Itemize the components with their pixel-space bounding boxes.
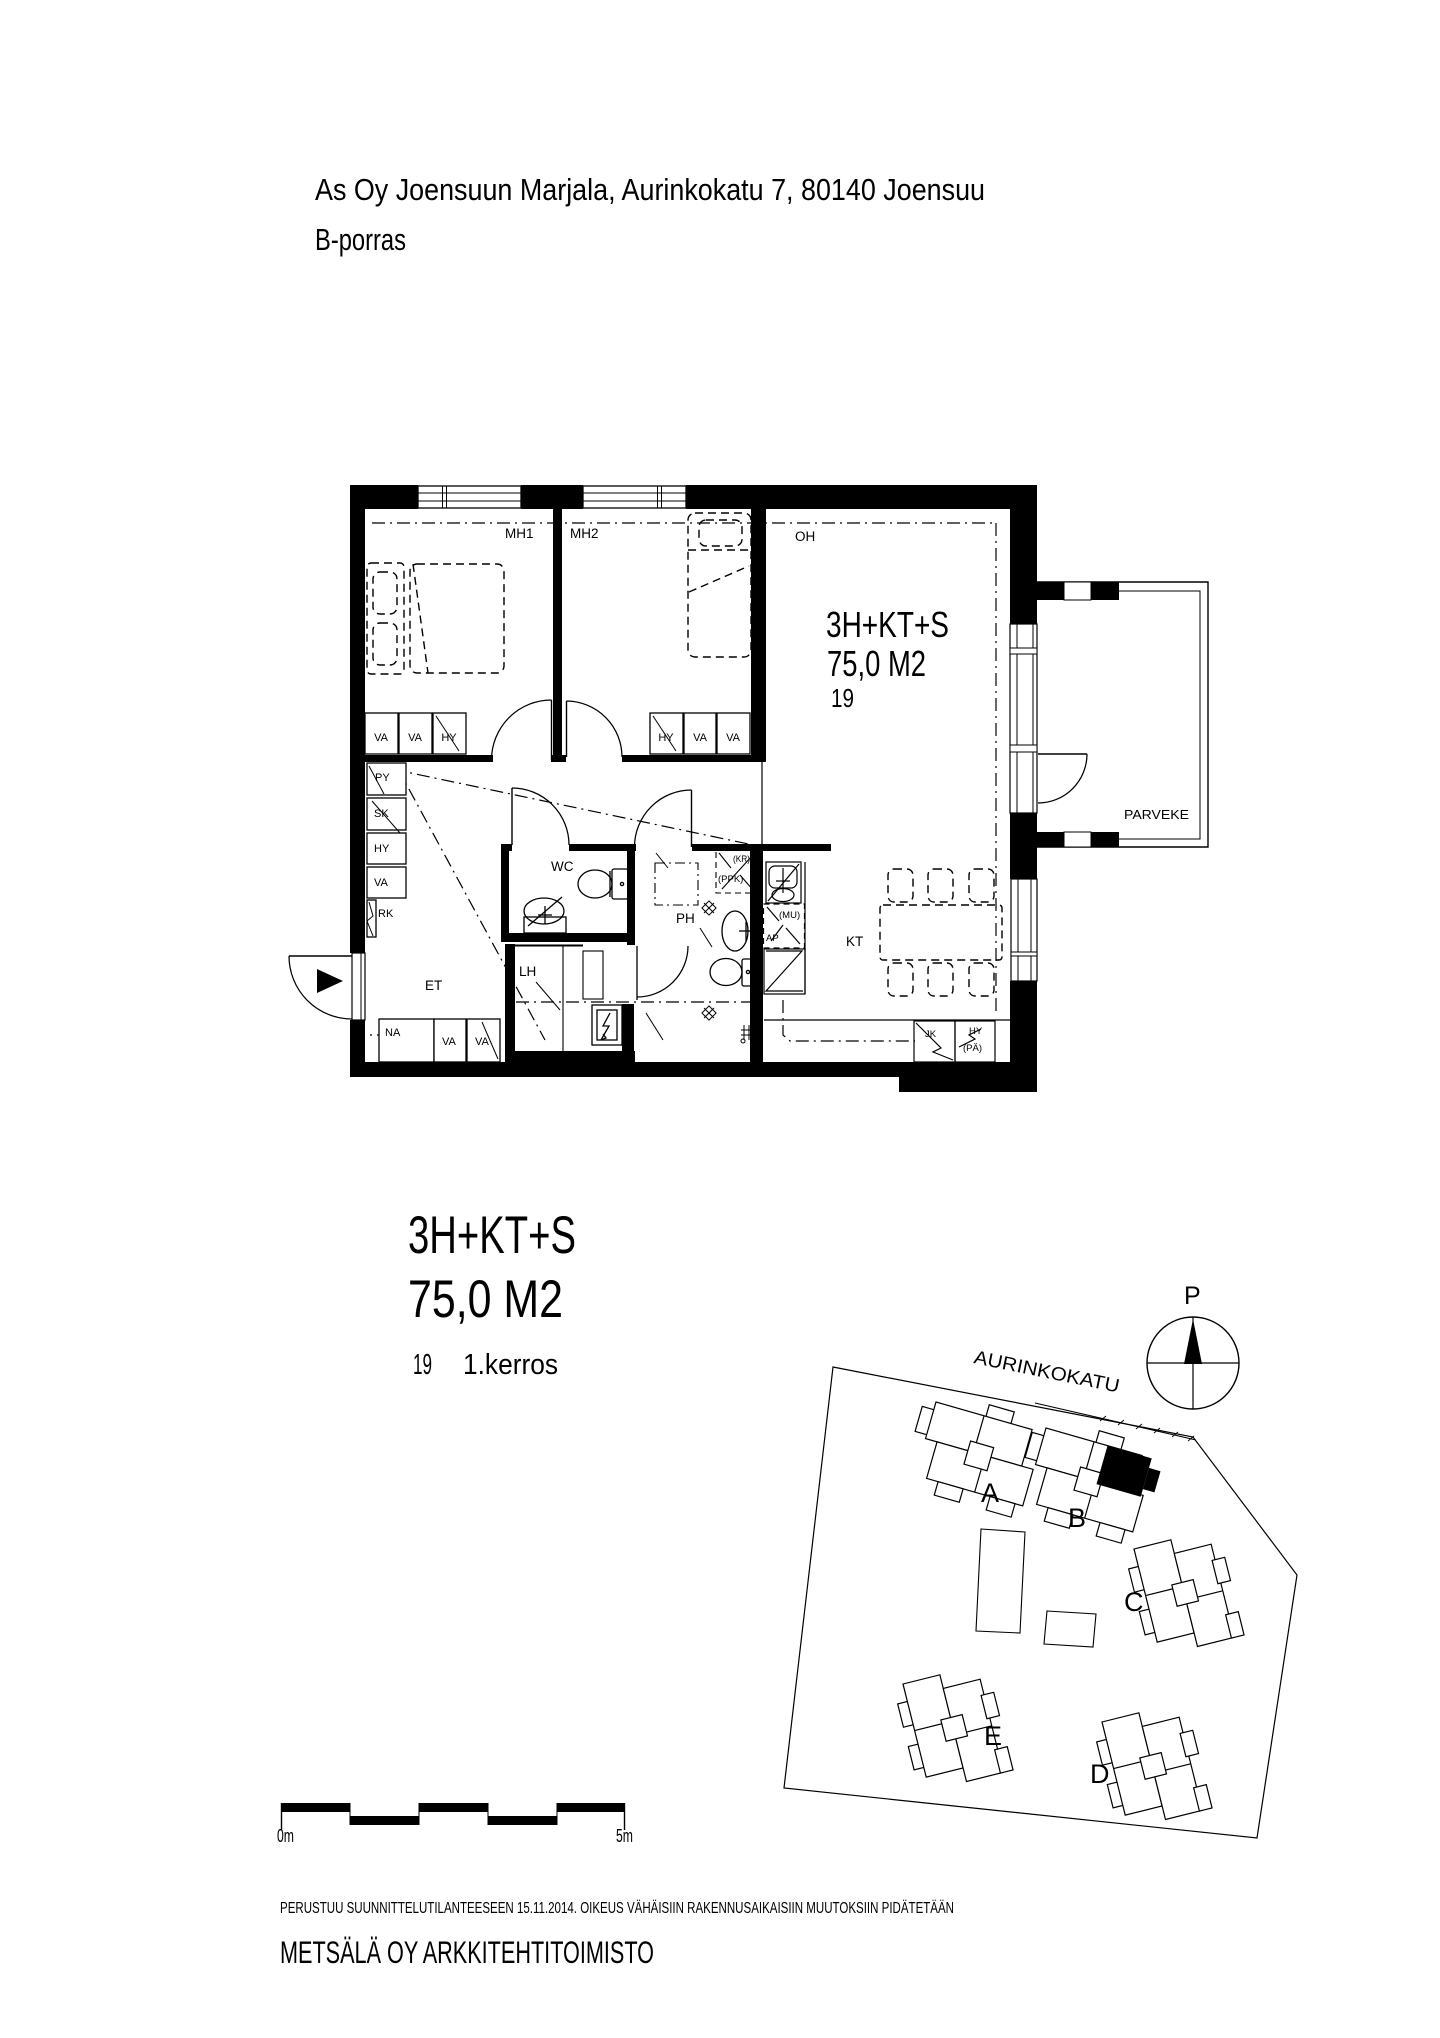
svg-text:A: A — [981, 1478, 999, 1508]
svg-text:As Oy Joensuun Marjala, Aurink: As Oy Joensuun Marjala, Aurinkokatu 7, 8… — [315, 172, 985, 207]
svg-text:PY: PY — [375, 772, 390, 784]
svg-text:RK: RK — [378, 908, 394, 920]
svg-text:B-porras: B-porras — [315, 222, 406, 257]
svg-text:AP: AP — [766, 933, 779, 944]
svg-text:VA: VA — [374, 877, 389, 889]
svg-text:JK: JK — [925, 1029, 937, 1040]
svg-text:3H+KT+S: 3H+KT+S — [408, 1206, 576, 1265]
svg-text:(MU): (MU) — [779, 910, 800, 921]
svg-text:PARVEKE: PARVEKE — [1124, 807, 1189, 822]
svg-text:B: B — [1068, 1503, 1086, 1533]
svg-text:PERUSTUU SUUNNITTELUTILANTEESE: PERUSTUU SUUNNITTELUTILANTEESEEN 15.11.2… — [280, 1899, 954, 1917]
svg-text:OH: OH — [795, 529, 815, 544]
svg-text:VA: VA — [442, 1036, 457, 1048]
svg-text:ET: ET — [425, 978, 442, 993]
svg-text:(KR): (KR) — [733, 854, 750, 865]
svg-text:P: P — [1184, 1282, 1201, 1310]
svg-text:19: 19 — [831, 683, 854, 713]
svg-text:75,0 M2: 75,0 M2 — [408, 1270, 563, 1329]
svg-text:VA: VA — [693, 732, 708, 744]
svg-text:(PPK): (PPK) — [718, 874, 743, 885]
svg-text:HY: HY — [969, 1026, 983, 1037]
svg-text:METSÄLÄ OY ARKKITEHTITOIMISTO: METSÄLÄ OY ARKKITEHTITOIMISTO — [280, 1934, 654, 1970]
svg-text:5m: 5m — [616, 1826, 633, 1846]
svg-text:KT: KT — [846, 934, 863, 949]
svg-text:3H+KT+S: 3H+KT+S — [826, 604, 949, 645]
svg-text:WC: WC — [551, 859, 574, 874]
svg-text:VA: VA — [475, 1036, 490, 1048]
svg-text:HY: HY — [441, 732, 457, 744]
svg-text:SK: SK — [374, 808, 389, 820]
svg-text:MH1: MH1 — [505, 526, 534, 541]
svg-text:19: 19 — [413, 1349, 432, 1381]
svg-text:MH2: MH2 — [570, 526, 599, 541]
svg-text:1.kerros: 1.kerros — [463, 1349, 558, 1381]
svg-text:VA: VA — [408, 732, 423, 744]
svg-text:0m: 0m — [277, 1826, 294, 1846]
svg-text:C: C — [1124, 1587, 1144, 1617]
svg-text:LH: LH — [519, 964, 536, 979]
svg-text:E: E — [984, 1721, 1002, 1751]
svg-text:NA: NA — [385, 1027, 401, 1039]
svg-text:HY: HY — [658, 732, 674, 744]
svg-text:D: D — [1090, 1759, 1110, 1789]
svg-text:VA: VA — [374, 732, 389, 744]
svg-text:75,0 M2: 75,0 M2 — [827, 643, 926, 684]
svg-text:PH: PH — [676, 911, 695, 926]
svg-text:VA: VA — [726, 732, 741, 744]
svg-text:HY: HY — [374, 843, 390, 855]
svg-text:(PÄ): (PÄ) — [963, 1043, 982, 1054]
